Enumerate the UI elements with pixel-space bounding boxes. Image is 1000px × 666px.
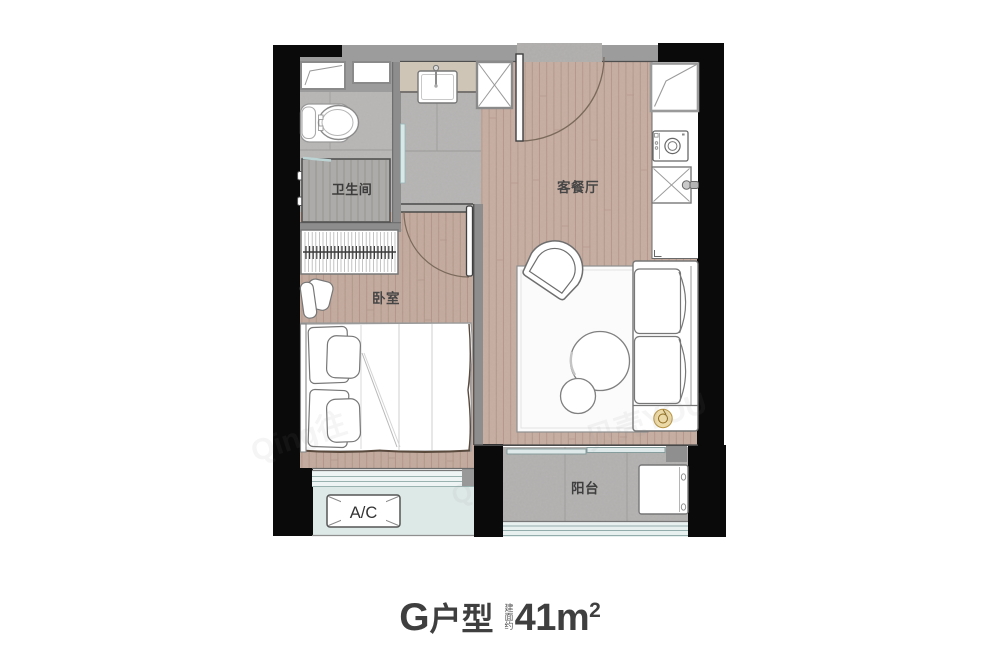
svg-text:卧室: 卧室 bbox=[372, 290, 400, 306]
svg-text:客餐厅: 客餐厅 bbox=[556, 179, 599, 195]
svg-text:卫生间: 卫生间 bbox=[332, 182, 373, 197]
svg-text:阳台: 阳台 bbox=[571, 480, 599, 496]
svg-text:A/C: A/C bbox=[350, 504, 378, 522]
